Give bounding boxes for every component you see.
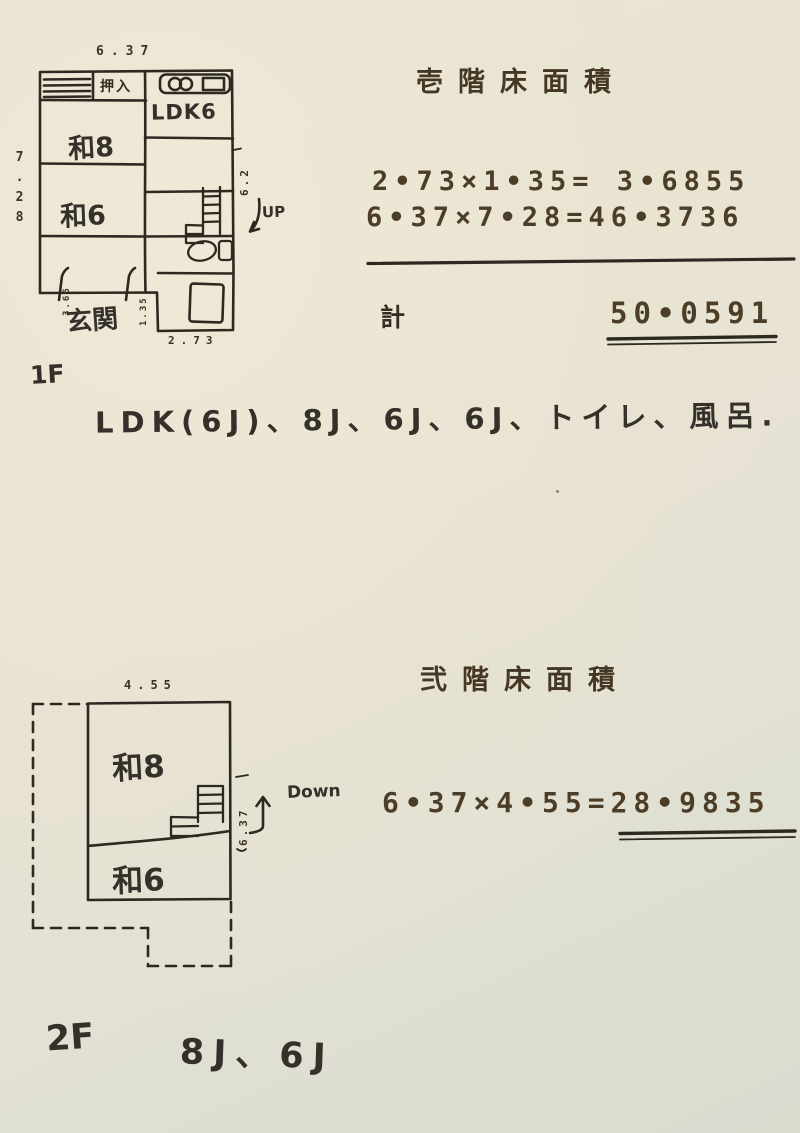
up-arrow-label: UP xyxy=(262,203,286,222)
floor1-dim-left: 7.28 xyxy=(12,150,27,230)
floor2-floor-label: 2F xyxy=(45,1016,96,1059)
room-label-ldk: LDK6 xyxy=(151,99,217,124)
room-label-wa6-1f: 和6 xyxy=(59,193,106,234)
down-arrow-label: Down xyxy=(287,781,341,803)
floor2-eq-underline xyxy=(620,831,795,834)
down-arrow-icon xyxy=(250,797,270,833)
floor1-dim-ext-height: 1.35 xyxy=(139,296,149,326)
floor1-total-value: 50•0591 xyxy=(610,296,774,330)
floor2-dim-right: 6.37 xyxy=(237,808,250,847)
room-label-oshiire: 押入 xyxy=(100,76,132,96)
floor1-total-label: 計 xyxy=(380,298,405,334)
floor1-floor-label: 1F xyxy=(29,359,65,390)
room-label-wa8-2f: 和8 xyxy=(111,741,166,789)
bathtub-icon xyxy=(189,283,223,322)
room-label-genkan: 玄関 xyxy=(65,298,119,339)
floor1-equation-1: 2•73×1•35= 3•6855 xyxy=(372,166,750,197)
stairs-icon xyxy=(186,187,220,243)
floor2-title: 弐階床面積 xyxy=(420,658,630,697)
room-label-wa6-2f: 和6 xyxy=(111,854,165,901)
floor2-dim-top: 4.55 xyxy=(124,678,177,692)
stairs-icon xyxy=(171,786,223,836)
floor1-total-underline xyxy=(608,337,776,340)
up-arrow-icon xyxy=(250,199,259,232)
floor1-dim-right: 6.2 xyxy=(238,167,251,196)
scanned-document-page: 6.37 7.28 6.2 押入 LDK6 和8 和6 玄関 3.66 1.35… xyxy=(0,0,800,1133)
floor2-rooms-note: 8J、6J xyxy=(179,1023,335,1079)
floor1-center-wall xyxy=(145,72,146,293)
kitchen-counter-icon xyxy=(160,75,230,94)
floor1-dim-top: 6.37 xyxy=(96,44,155,59)
floor1-rooms-note: LDK(6J)、8J、6J、6J、トイレ、風呂. xyxy=(95,392,780,441)
room-label-wa8-1f: 和8 xyxy=(67,125,115,166)
floor2-equation: 6•37×4•55=28•9835 xyxy=(382,786,771,819)
floor1-equation-2: 6•37×7•28=46•3736 xyxy=(366,202,744,233)
floor1-sum-rule xyxy=(368,259,794,264)
paper-speck xyxy=(556,490,559,493)
floor1-dim-genkan: 3.66 xyxy=(62,286,72,316)
floor1-title: 壱階床面積 xyxy=(416,60,626,99)
genkan-tick-right xyxy=(126,268,135,300)
floor1-dim-ext-width: 2.73 xyxy=(168,334,219,347)
